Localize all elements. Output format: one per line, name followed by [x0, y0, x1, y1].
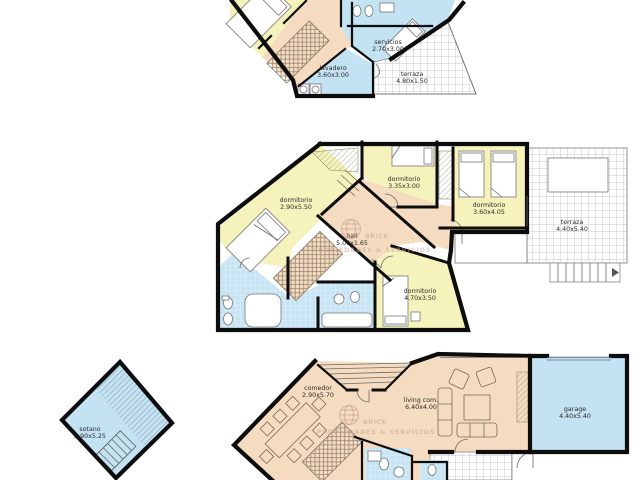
door-arc-garage-entry [517, 452, 533, 468]
brand-text: BRICK [365, 233, 390, 240]
label-dormitorio-3: dormitorio3.60x4.05 [473, 202, 506, 216]
terraza-stairs [550, 263, 620, 282]
label-comedor: comedor2.90x5.70 [302, 385, 334, 399]
terraza-pergola [548, 158, 608, 192]
label-dormitorio-4: dormitorio4.70x3.50 [404, 288, 437, 302]
brand-text: BRICK [363, 419, 388, 426]
label-lavadero: lavadero3.60x3.00 [317, 65, 349, 79]
closet-dormitorio-3 [439, 151, 452, 199]
bed-dormitorio-2 [392, 146, 434, 166]
plan-sotano [62, 362, 172, 478]
label-terraza-middle: terraza4.40x5.40 [556, 219, 588, 233]
label-dormitorio-1: dormitorio2.90x5.50 [280, 197, 313, 211]
plan-top-floor [226, 0, 476, 96]
label-living: living com.6.40x4.00 [404, 397, 438, 411]
room-garage [530, 356, 627, 452]
brand-tagline: PROPIEDADES & SERVICIOS [317, 429, 436, 436]
brand-tagline: PROPIEDADES & SERVICIOS [313, 247, 432, 254]
label-dormitorio-2: dormitorio3.35x3.00 [388, 176, 421, 190]
label-terraza-top: terraza4.80x1.50 [396, 71, 428, 85]
floor-plan-sheet: servicios2.70x3.00 lavadero3.60x3.00 ter… [0, 0, 640, 480]
entry-balcony [455, 232, 527, 263]
label-servicios: servicios2.70x3.00 [372, 39, 404, 53]
floor-plan-canvas: servicios2.70x3.00 lavadero3.60x3.00 ter… [0, 0, 640, 480]
